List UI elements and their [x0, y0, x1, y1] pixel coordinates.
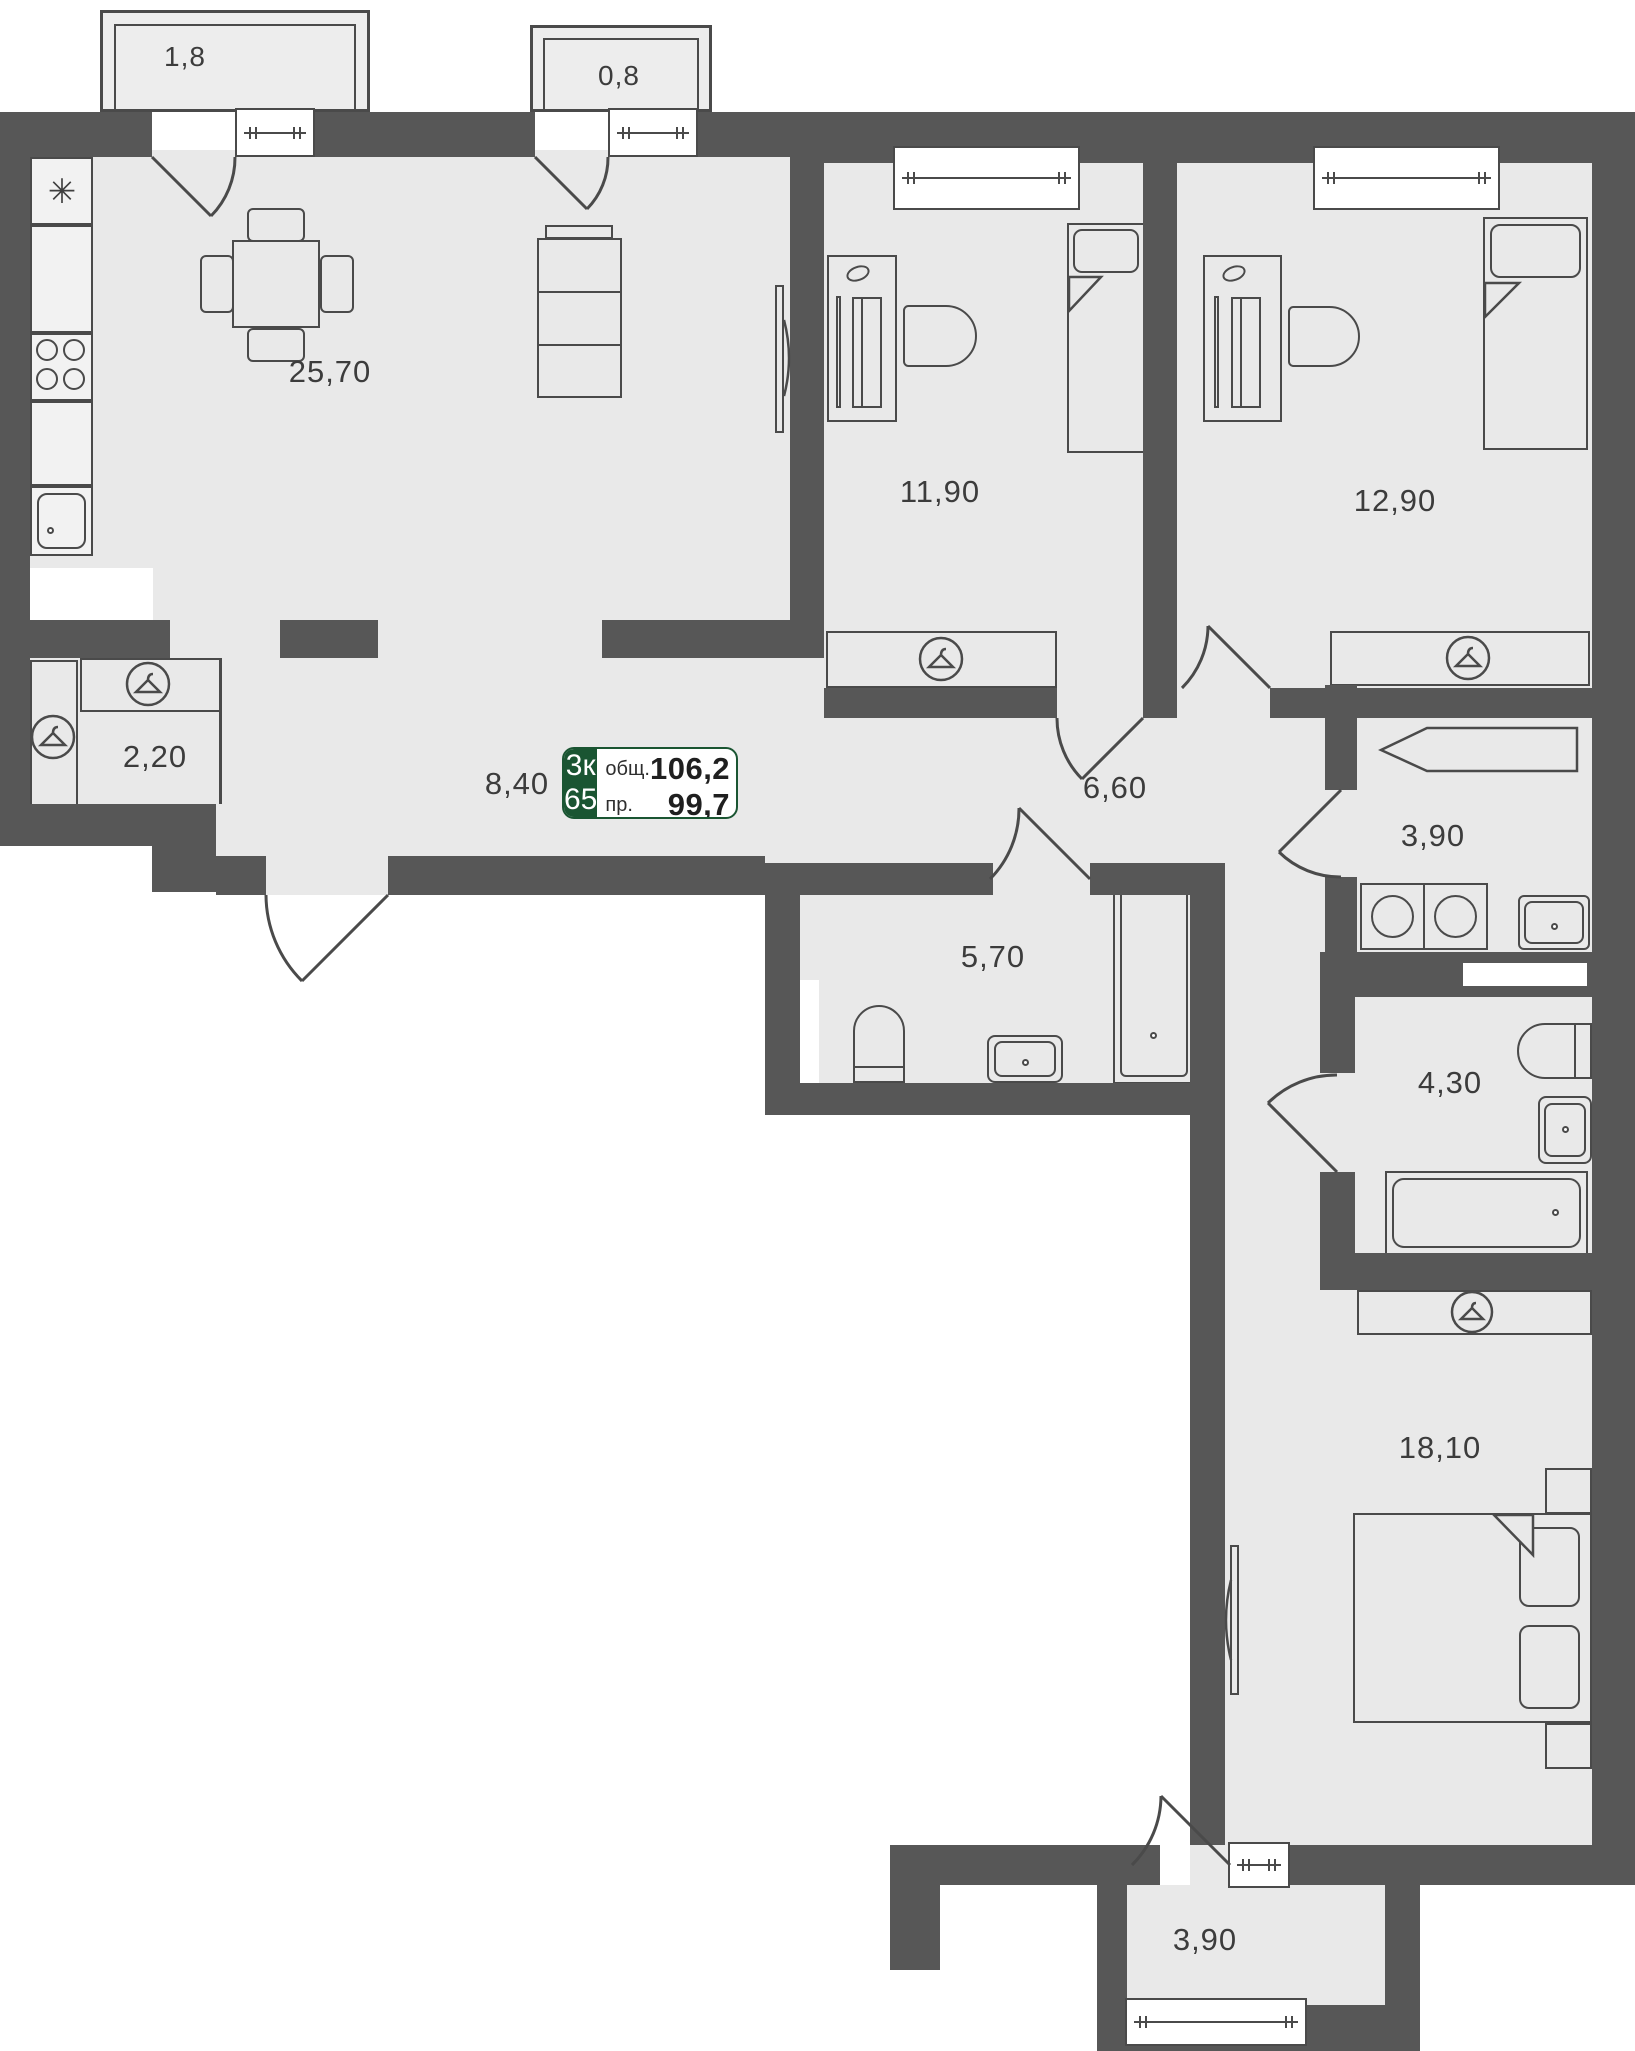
wall — [0, 620, 170, 658]
sink-drain — [1551, 923, 1558, 930]
room-label-corridor: 6,60 — [1083, 770, 1147, 806]
bed-pillow — [1519, 1527, 1580, 1607]
room-label-bathroom2: 4,30 — [1418, 1065, 1482, 1101]
window — [1125, 1998, 1307, 2046]
balcony-top-left-inner — [114, 24, 356, 112]
kitchen-counter-1 — [30, 225, 93, 333]
toilet-base-line — [853, 1066, 905, 1068]
desk-monitor — [1214, 296, 1219, 408]
room-label-balcony-top-mid: 0,8 — [598, 60, 640, 92]
toilet — [1517, 1023, 1592, 1079]
window — [893, 146, 1080, 210]
kitchen-sink-drain — [47, 527, 54, 534]
desk-chair — [1288, 306, 1360, 367]
toilet — [853, 1005, 905, 1083]
room-label-bedroom1: 11,90 — [900, 474, 980, 510]
washer-drum — [1371, 895, 1414, 938]
bathtub-drain — [1552, 1209, 1559, 1216]
apartment-info-badge: 3к 65 общ. 106,2 пр. 99,7 — [562, 747, 738, 819]
wall — [1190, 863, 1225, 1845]
room-label-bedroom2: 12,90 — [1354, 483, 1437, 519]
wall — [1320, 997, 1355, 1073]
wall — [790, 156, 824, 658]
desk-chair — [903, 305, 977, 367]
sink-drain — [1562, 1126, 1569, 1133]
desk-keyboard-line — [861, 299, 863, 406]
desk-monitor — [836, 296, 841, 408]
wall-niche — [1463, 963, 1587, 986]
cabinet-shelf — [539, 291, 620, 293]
wardrobe-strip — [30, 660, 78, 813]
window — [608, 108, 698, 157]
desk-keyboard — [852, 297, 882, 408]
room-label-hallway: 8,40 — [485, 766, 549, 802]
badge-total-row: общ. 106,2 — [605, 751, 730, 787]
desk-keyboard-line — [1240, 299, 1242, 406]
wall — [602, 620, 790, 658]
wall — [0, 112, 30, 846]
room-label-balcony-bottom: 3,90 — [1173, 1922, 1237, 1958]
burner — [36, 368, 58, 390]
badge-reduced-row: пр. 99,7 — [605, 787, 730, 819]
wall — [1270, 688, 1592, 718]
bed-pillow — [1519, 1625, 1580, 1709]
reduced-area-label: пр. — [605, 794, 633, 817]
wall — [765, 895, 800, 1115]
desk-keyboard — [1231, 297, 1261, 408]
total-area-value: 106,2 — [650, 751, 730, 787]
partition-line — [219, 658, 222, 804]
room-label-bathroom1: 5,70 — [961, 939, 1025, 975]
toilet-base-line — [1574, 1023, 1576, 1079]
washer-drum — [1434, 895, 1477, 938]
cabinet — [537, 238, 622, 398]
wall — [315, 112, 535, 157]
wardrobe-strip — [1330, 631, 1590, 686]
wall — [698, 112, 824, 157]
cabinet-shelf — [539, 344, 620, 346]
dining-chair — [320, 255, 354, 313]
window — [235, 108, 315, 157]
apartment-type: 3к — [564, 749, 597, 783]
apartment-number: 65 — [564, 783, 597, 817]
wall — [1592, 112, 1635, 1885]
cabinet-top — [545, 225, 613, 239]
shower-drain — [1150, 1032, 1157, 1039]
window — [1313, 146, 1500, 210]
dining-table — [232, 240, 320, 328]
shower-inner — [1120, 885, 1188, 1077]
bed-pillow — [1490, 224, 1581, 278]
burner — [63, 368, 85, 390]
wall — [280, 620, 378, 658]
wall — [388, 856, 765, 895]
wall — [1320, 1253, 1592, 1290]
bed-pillow — [1073, 229, 1139, 273]
badge-right-column: общ. 106,2 пр. 99,7 — [597, 749, 738, 817]
wall — [824, 688, 1057, 718]
tv-bedroom — [1230, 1545, 1239, 1695]
total-area-label: общ. — [605, 758, 650, 781]
wall — [765, 1083, 1225, 1115]
burner — [36, 339, 58, 361]
wall — [890, 1845, 940, 1970]
room-label-laundry: 3,90 — [1401, 818, 1465, 854]
room-label-kitchen-living: 25,70 — [289, 354, 372, 390]
entrance-door-swing — [266, 895, 388, 981]
window — [1228, 1842, 1290, 1888]
wall — [1325, 685, 1357, 790]
wall — [1288, 1845, 1592, 1885]
room-label-balcony-top-left: 1,8 — [164, 41, 206, 73]
badge-left-column: 3к 65 — [564, 749, 597, 817]
burner — [63, 339, 85, 361]
room-label-bedroom3: 18,10 — [1399, 1430, 1482, 1466]
wardrobe-strip — [80, 658, 221, 712]
wall — [1090, 863, 1193, 895]
room-label-wardrobe: 2,20 — [123, 739, 187, 775]
dining-chair — [247, 208, 305, 242]
kitchen-duct — [30, 568, 153, 627]
sink-drain — [1022, 1059, 1029, 1066]
wardrobe-strip — [826, 631, 1057, 688]
kitchen-counter-2 — [30, 401, 93, 486]
dining-chair — [200, 255, 234, 313]
floor-plan: ✳ — [0, 0, 1635, 2051]
wall — [1143, 156, 1177, 718]
tv-living — [775, 285, 784, 433]
reduced-area-value: 99,7 — [668, 787, 730, 819]
wall — [765, 863, 993, 895]
wall — [152, 804, 216, 892]
nightstand — [1545, 1723, 1592, 1769]
wall — [216, 856, 266, 895]
nightstand — [1545, 1468, 1592, 1514]
kitchen-sink-bowl — [37, 493, 86, 549]
snowflake-icon: ✳ — [48, 172, 77, 212]
closet-strip — [1357, 1290, 1592, 1335]
